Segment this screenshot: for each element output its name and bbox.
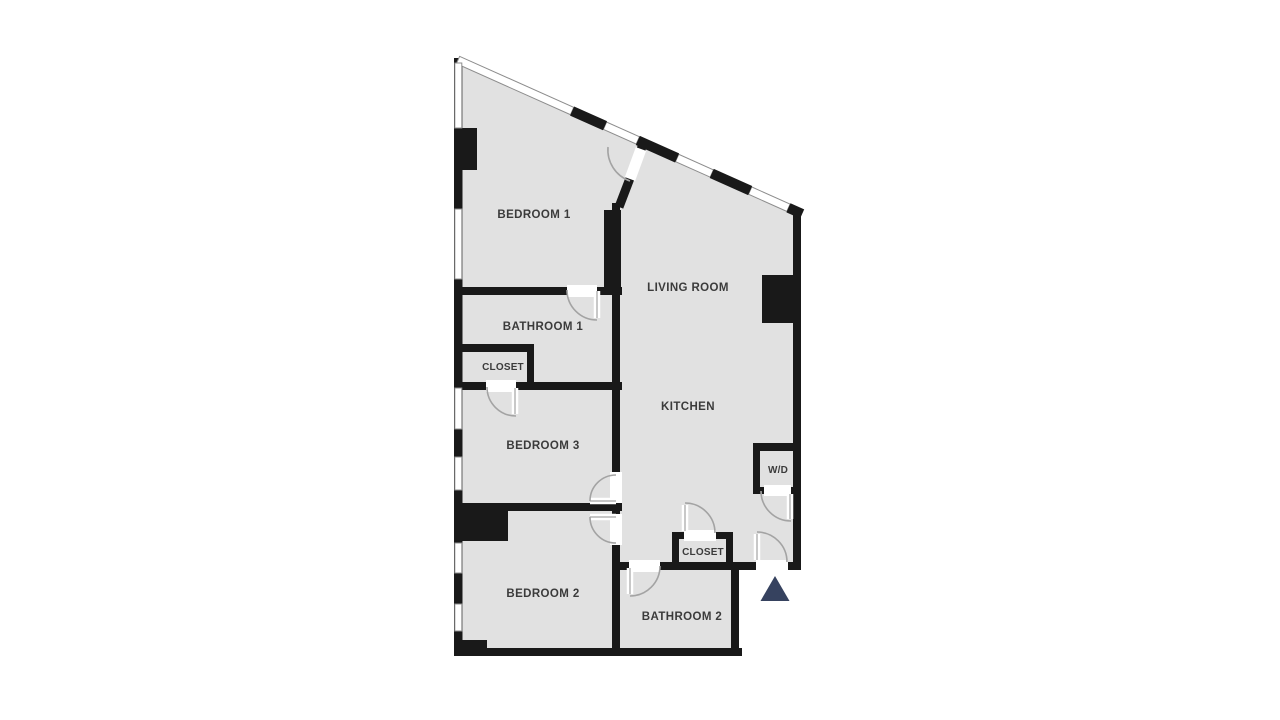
floor-plan-canvas: BEDROOM 1 LIVING ROOM BATHROOM 1 CLOSET … <box>0 0 1280 720</box>
entry-marker-icon <box>761 576 790 601</box>
room-label-washer-dryer: W/D <box>768 465 788 476</box>
room-label-bathroom-1: BATHROOM 1 <box>503 321 584 333</box>
room-label-bedroom-2: BEDROOM 2 <box>506 588 579 600</box>
room-label-kitchen: KITCHEN <box>661 401 715 413</box>
room-label-bedroom-3: BEDROOM 3 <box>506 440 579 452</box>
room-label-bathroom-2: BATHROOM 2 <box>642 611 722 623</box>
room-label-living-room: LIVING ROOM <box>647 282 729 294</box>
room-label-closet-2: CLOSET <box>682 547 724 558</box>
room-label-bedroom-1: BEDROOM 1 <box>497 209 570 221</box>
floor-plan: BEDROOM 1 LIVING ROOM BATHROOM 1 CLOSET … <box>0 0 1280 720</box>
room-label-closet-1: CLOSET <box>482 362 524 373</box>
